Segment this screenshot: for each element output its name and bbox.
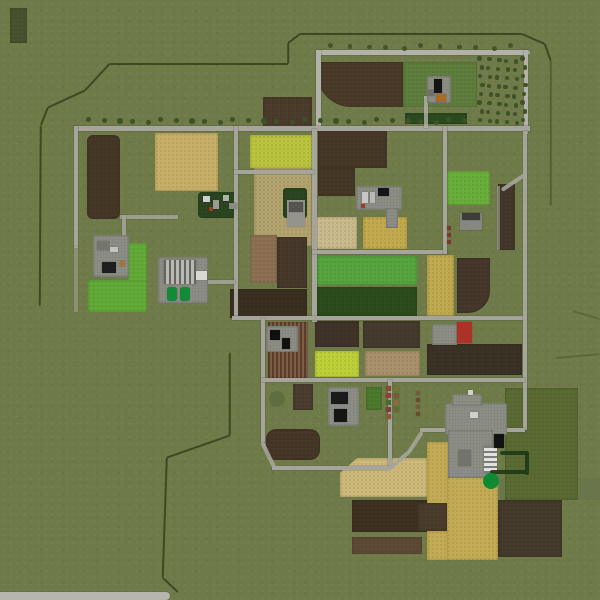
building — [458, 450, 471, 466]
roadside-tree — [158, 117, 164, 123]
building — [223, 195, 229, 201]
pallet — [416, 398, 420, 402]
field — [447, 477, 498, 560]
roadside-tree — [362, 120, 368, 126]
boundary-line — [287, 43, 289, 64]
field — [317, 256, 417, 285]
field — [293, 384, 313, 410]
building — [470, 412, 478, 418]
boundary-line — [167, 435, 230, 458]
field — [318, 131, 387, 168]
field — [363, 217, 407, 249]
field — [427, 531, 448, 560]
roadside-tree — [174, 118, 180, 124]
road — [272, 466, 390, 470]
orchard-tree — [520, 56, 524, 60]
road — [261, 378, 525, 382]
roof — [462, 213, 480, 220]
building — [428, 90, 434, 96]
building — [229, 203, 237, 209]
roadside-tree — [383, 45, 388, 50]
map-canvas — [0, 0, 600, 600]
market-stall — [386, 393, 391, 398]
boundary-line — [229, 353, 231, 436]
roadside-tree — [348, 44, 353, 49]
orchard-tree — [505, 76, 509, 80]
building — [370, 192, 375, 203]
machine — [436, 94, 446, 102]
field — [250, 235, 277, 283]
beehive — [447, 233, 451, 237]
orchard-tree — [488, 119, 492, 123]
hedge — [490, 470, 527, 474]
field — [427, 344, 522, 375]
industrial-roof — [334, 409, 347, 422]
field — [277, 237, 307, 288]
roadside-tree — [418, 43, 423, 48]
orchard-tree — [523, 109, 527, 113]
boundary-line — [40, 107, 48, 126]
roadside-tree — [402, 46, 407, 51]
building — [110, 247, 118, 252]
roadside-tree — [202, 119, 208, 125]
market-stall — [394, 400, 399, 405]
boundary-line — [48, 90, 86, 108]
farm-yard — [386, 208, 398, 228]
orchard-tree — [513, 112, 517, 116]
field — [498, 500, 562, 557]
orchard-tree — [505, 120, 509, 124]
field — [250, 135, 312, 168]
roadside-tree — [434, 120, 440, 126]
boundary-line — [300, 33, 522, 35]
orchard-tree — [523, 65, 527, 69]
orchard-tree — [480, 65, 484, 69]
boundary-line — [573, 310, 600, 319]
driveway — [120, 215, 178, 219]
orchard-tree — [495, 119, 499, 123]
boundary-line — [556, 353, 600, 358]
orchard-tree — [486, 110, 490, 114]
boundary-line — [84, 63, 110, 91]
roadside-tree — [438, 44, 443, 49]
building — [203, 196, 210, 202]
road — [234, 170, 314, 174]
beehive — [447, 240, 451, 244]
market-stall — [386, 386, 391, 391]
orchard-tree — [506, 67, 510, 71]
big-barn — [164, 260, 196, 284]
building — [362, 192, 368, 203]
orchard-tree — [520, 100, 524, 104]
orchard-tree — [480, 109, 484, 113]
boundary-line — [522, 33, 546, 44]
edge-road — [0, 592, 170, 600]
meadow-field — [505, 388, 578, 500]
orchard-tree — [506, 111, 510, 115]
field — [427, 255, 454, 316]
field — [317, 62, 403, 107]
orchard-tree — [512, 94, 516, 98]
pallet — [416, 405, 420, 409]
road — [234, 126, 238, 320]
boundary-line — [162, 458, 167, 578]
market-stall — [386, 414, 391, 419]
map-window — [0, 0, 600, 600]
driveway — [207, 280, 235, 284]
field — [363, 321, 420, 348]
field — [315, 217, 357, 249]
roadside-tree — [218, 120, 224, 126]
orchard-tree — [496, 111, 500, 115]
road — [312, 129, 317, 322]
orchard-tree — [523, 83, 527, 87]
barn-dark — [102, 262, 116, 273]
roadside-tree — [492, 46, 497, 51]
roadside-tree — [367, 45, 372, 50]
roadside-tree — [405, 118, 411, 124]
orchard-tree — [514, 59, 518, 63]
orchard-tree — [478, 74, 482, 78]
orchard-tree — [489, 92, 493, 96]
machine-green — [180, 287, 190, 301]
barn-dark — [494, 434, 504, 448]
road — [497, 186, 500, 250]
orchard-tree — [486, 66, 490, 70]
field — [418, 503, 447, 531]
farm-yard — [452, 394, 482, 406]
road — [312, 250, 447, 254]
roadside-tree — [333, 118, 339, 124]
big-tree — [483, 473, 499, 489]
orchard-tree — [488, 75, 492, 79]
building — [361, 204, 365, 208]
boundary-line — [162, 577, 178, 592]
orchard-tree — [505, 94, 509, 98]
roadside-tree — [318, 118, 324, 124]
machine-green — [167, 287, 177, 301]
field — [317, 287, 417, 316]
field — [88, 280, 147, 312]
roadside-tree — [261, 118, 267, 124]
field — [352, 500, 427, 532]
bush — [269, 391, 285, 407]
machine — [120, 261, 125, 266]
red-barn — [457, 322, 472, 343]
barn-dark — [270, 330, 280, 340]
orchard-tree — [477, 100, 481, 104]
field — [315, 321, 359, 347]
roadside-tree — [230, 117, 236, 123]
pallet — [416, 391, 420, 395]
beehive — [447, 226, 451, 230]
orchard-tree — [504, 103, 508, 107]
orchard-tree — [497, 58, 501, 62]
building — [97, 241, 109, 250]
orchard-tree — [497, 84, 501, 88]
field — [366, 387, 382, 410]
market-stall — [394, 407, 399, 412]
roadside-tree — [146, 120, 152, 126]
roadside-tree — [473, 45, 478, 50]
field — [315, 351, 359, 377]
field — [498, 184, 515, 250]
barn-dark — [282, 338, 290, 349]
pallet — [416, 412, 420, 416]
roadside-tree — [346, 119, 352, 125]
boundary-line — [110, 63, 288, 65]
orchard-tree — [504, 59, 508, 63]
boundary-line — [544, 44, 551, 61]
orchard-tree — [487, 84, 491, 88]
roadside-tree — [246, 118, 252, 124]
field — [87, 135, 120, 219]
field — [230, 289, 307, 318]
building — [209, 207, 213, 211]
orchard-tree — [497, 102, 501, 106]
field — [128, 243, 147, 285]
roadside-tree — [374, 117, 380, 123]
market-stall — [386, 400, 391, 405]
roadside-tree — [130, 119, 136, 125]
roof — [289, 202, 303, 212]
road — [74, 126, 78, 248]
orchard-tree — [495, 75, 499, 79]
roadside-tree — [189, 118, 195, 124]
woodland-patch — [10, 8, 27, 43]
building — [213, 200, 219, 209]
boundary-line — [288, 33, 301, 43]
road — [232, 316, 527, 320]
field — [352, 537, 422, 554]
road — [74, 246, 78, 312]
orchard-tree — [480, 83, 484, 87]
roadside-tree — [86, 117, 92, 123]
roadside-tree — [390, 118, 396, 124]
orchard-tree — [487, 101, 491, 105]
orchard-tree — [477, 56, 481, 60]
orchard-tree — [496, 67, 500, 71]
orchard-tree — [514, 103, 518, 107]
orchard-tree — [515, 77, 519, 81]
field — [155, 133, 218, 191]
barn-dark — [378, 188, 389, 196]
field — [365, 351, 420, 376]
field — [427, 442, 448, 504]
barn-dark — [434, 79, 442, 93]
field — [266, 429, 320, 460]
orchard-tree — [513, 86, 517, 90]
orchard-tree — [495, 93, 499, 97]
building — [468, 390, 473, 395]
orchard-tree — [479, 92, 483, 96]
roadside-tree — [457, 45, 462, 50]
orchard-tree — [515, 121, 519, 125]
roadside-tree — [508, 43, 513, 48]
field — [457, 258, 490, 313]
market-stall — [386, 407, 391, 412]
building — [196, 271, 207, 280]
roadside-tree — [102, 118, 108, 124]
field — [263, 97, 312, 127]
field — [447, 171, 490, 205]
field — [318, 168, 355, 196]
industrial-roof — [331, 392, 348, 404]
orchard-tree — [503, 85, 507, 89]
roadside-tree — [117, 118, 123, 124]
driveway — [122, 215, 126, 237]
boundary-line — [39, 126, 41, 306]
market-stall — [394, 386, 399, 391]
market-stall — [394, 393, 399, 398]
field — [340, 458, 427, 497]
orchard-tree — [513, 68, 517, 72]
roadside-tree — [328, 43, 333, 48]
boundary-line — [550, 61, 552, 206]
orchard-tree — [478, 118, 482, 122]
road — [74, 126, 530, 131]
road — [316, 50, 530, 55]
farm-yard — [432, 324, 457, 345]
orchard-tree — [487, 57, 491, 61]
white-barn — [484, 446, 497, 473]
road — [407, 431, 423, 453]
